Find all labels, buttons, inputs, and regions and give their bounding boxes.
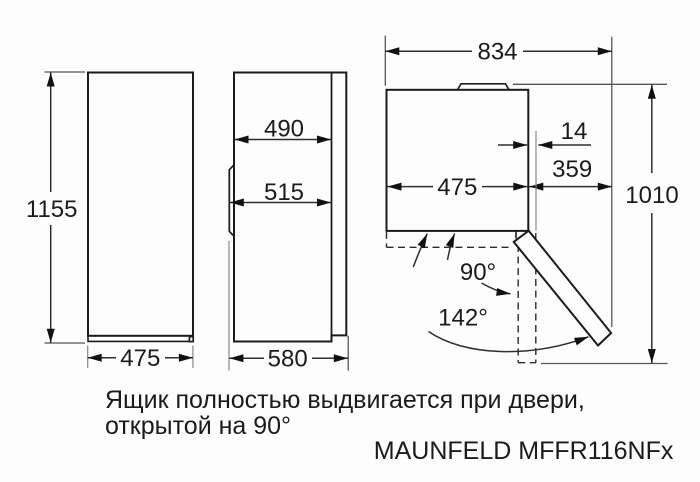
svg-text:90°: 90°	[460, 259, 496, 286]
svg-text:580: 580	[268, 346, 308, 373]
svg-text:475: 475	[437, 174, 477, 201]
svg-text:515: 515	[264, 179, 304, 206]
svg-text:359: 359	[552, 156, 592, 183]
svg-text:14: 14	[561, 118, 588, 145]
svg-text:1155: 1155	[26, 196, 78, 223]
svg-text:открытой на 90°: открытой на 90°	[105, 412, 291, 440]
svg-text:142°: 142°	[438, 304, 488, 331]
svg-text:490: 490	[264, 116, 304, 143]
svg-text:1010: 1010	[625, 182, 678, 209]
svg-text:MAUNFELD MFFR116NFx: MAUNFELD MFFR116NFx	[374, 437, 674, 465]
svg-text:834: 834	[477, 39, 517, 66]
svg-text:475: 475	[120, 345, 160, 372]
svg-text:Ящик полностью выдвигается при: Ящик полностью выдвигается при двери,	[105, 386, 585, 414]
